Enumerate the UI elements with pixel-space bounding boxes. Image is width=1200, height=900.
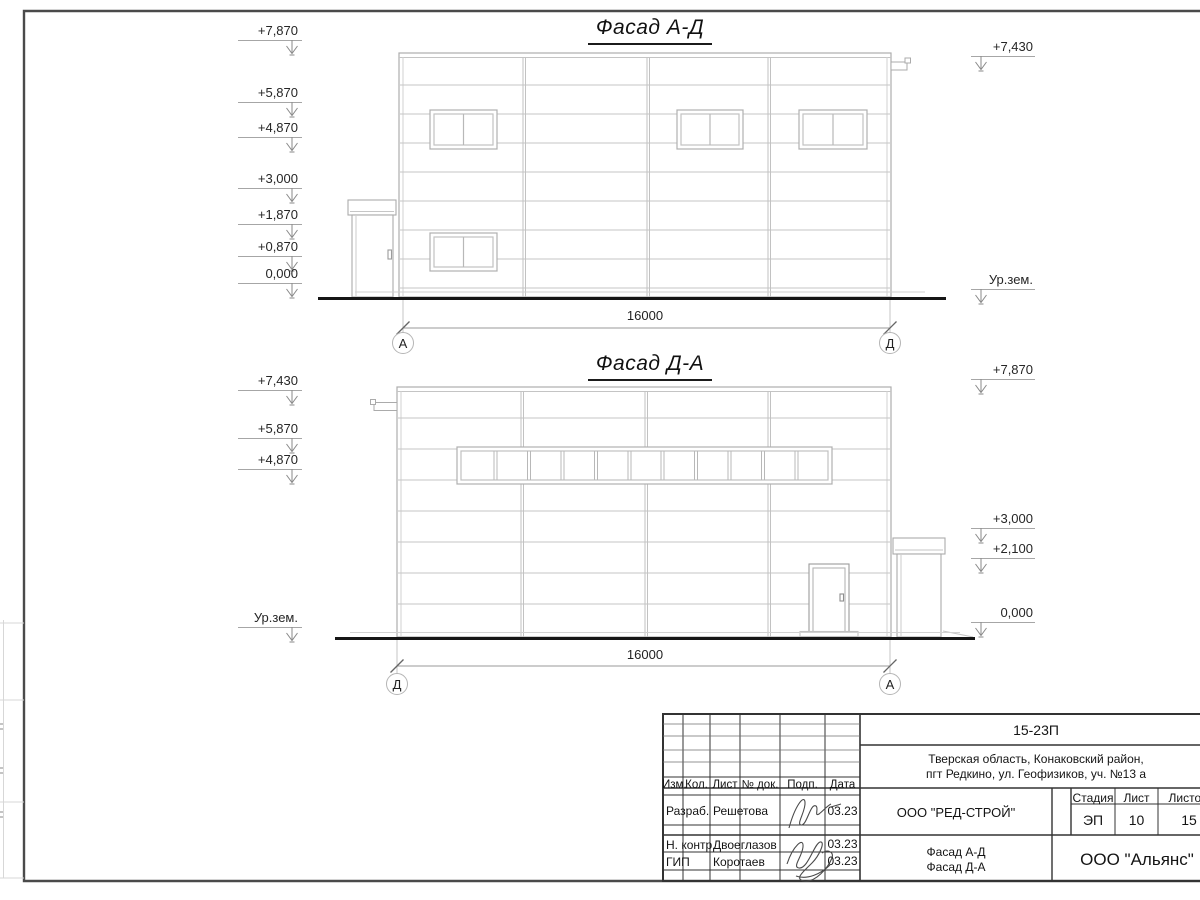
title-block-company: ООО "РЕД-СТРОЙ" xyxy=(862,805,1050,820)
elevation-symbol-icon xyxy=(285,283,299,299)
facade-top-dimension-label: 16000 xyxy=(540,308,750,323)
title-block-sheets-label: Листов xyxy=(1158,791,1200,805)
elevation-mark-b7870: +7,870 xyxy=(971,362,1035,380)
elevation-symbol-icon xyxy=(285,224,299,240)
facade-bottom-pipe xyxy=(371,400,398,411)
elevation-symbol-icon xyxy=(285,627,299,643)
facade-bottom-title-wrap: Фасад Д-А xyxy=(540,352,760,381)
elevation-mark-1870: +1,870 xyxy=(238,207,302,225)
elevation-symbol-icon xyxy=(974,289,988,305)
title-block-sheet-label: Лист xyxy=(1115,791,1158,805)
elevation-symbol-icon xyxy=(974,56,988,72)
title-block-col-kol: Кол. xyxy=(683,779,710,791)
elevation-mark-b0000: 0,000 xyxy=(971,605,1035,623)
elevation-symbol-icon xyxy=(974,622,988,638)
facade-top-title: Фасад А-Д xyxy=(588,16,712,45)
facade-bottom-building xyxy=(335,387,975,639)
elevation-symbol-icon xyxy=(285,469,299,485)
facade-top-pipe xyxy=(891,58,911,70)
facade-bottom-dimension-label: 16000 xyxy=(540,647,750,662)
elevation-mark-3000: +3,000 xyxy=(238,171,302,189)
title-block-sheets-value: 15 xyxy=(1158,812,1200,828)
facade-top-building xyxy=(318,53,946,299)
elevation-symbol-icon xyxy=(285,390,299,406)
axis-label-top-left: А xyxy=(392,336,414,351)
elevation-symbol-icon xyxy=(285,188,299,204)
axis-label-top-right: Д xyxy=(879,336,901,351)
elevation-symbol-icon xyxy=(285,137,299,153)
facade-top-porch xyxy=(348,200,396,297)
title-block-row-role: Н. контр. xyxy=(666,838,716,852)
elevation-symbol-icon xyxy=(285,40,299,56)
title-block-col-doc: № док. xyxy=(739,779,781,791)
title-block-row-date: 03.23 xyxy=(826,837,859,851)
title-block-col-list: Лист xyxy=(710,779,740,791)
title-block-row-date: 03.23 xyxy=(826,804,859,818)
elevation-mark-b3000: +3,000 xyxy=(971,511,1035,529)
elevation-mark-4870: +4,870 xyxy=(238,120,302,138)
elevation-symbol-icon xyxy=(974,558,988,574)
facade-bottom-door xyxy=(800,564,858,637)
title-block-row-name: Коротаев xyxy=(713,855,765,869)
title-block-row-role: ГИП xyxy=(666,855,690,869)
title-block-col-podp: Подп. xyxy=(780,779,825,791)
title-block-address-line1: Тверская область, Конаковский район, xyxy=(865,752,1200,766)
title-block-drawing-name-line1: Фасад А-Д xyxy=(862,845,1050,859)
facade-bottom-ribbon-window xyxy=(457,447,832,484)
title-block-project-code: 15-23П xyxy=(880,722,1192,738)
title-block-stage-label: Стадия xyxy=(1071,791,1115,805)
left-margin-artifacts xyxy=(0,620,24,878)
title-block-sheet-value: 10 xyxy=(1115,812,1158,828)
title-block-drawing-name-line2: Фасад Д-А xyxy=(862,860,1050,874)
elevation-mark-5870: +5,870 xyxy=(238,85,302,103)
elevation-symbol-icon xyxy=(285,102,299,118)
title-block-address-line2: пгт Редкино, ул. Геофизиков, уч. №13 а xyxy=(865,767,1200,781)
elevation-mark-ground-top: Ур.зем. xyxy=(971,272,1035,290)
axis-label-bottom-left: Д xyxy=(386,677,408,692)
title-block-contractor: ООО "Альянс" xyxy=(1052,850,1200,870)
title-block-col-data: Дата xyxy=(825,779,860,791)
title-block-row-role: Разраб. xyxy=(666,804,709,818)
elevation-mark-7430: +7,430 xyxy=(971,39,1035,57)
facade-bottom-vestibule xyxy=(893,538,973,637)
title-block-row-name: Двоеглазов xyxy=(713,838,777,852)
elevation-mark-b4870: +4,870 xyxy=(238,452,302,470)
elevation-mark-ground-bottom-left: Ур.зем. xyxy=(238,610,302,628)
elevation-mark-0870: +0,870 xyxy=(238,239,302,257)
elevation-mark-b2100: +2,100 xyxy=(971,541,1035,559)
elevation-mark-7870: +7,870 xyxy=(238,23,302,41)
facade-bottom-title: Фасад Д-А xyxy=(588,352,712,381)
drawing-sheet: Фасад А-Д Фасад Д-А +7,870 +5,870 +4,870… xyxy=(0,0,1200,900)
title-block-col-izm: Изм. xyxy=(662,779,684,791)
title-block-row-name: Решетова xyxy=(713,804,768,818)
elevation-symbol-icon xyxy=(974,379,988,395)
facade-top-title-wrap: Фасад А-Д xyxy=(540,16,760,45)
elevation-mark-b7430: +7,430 xyxy=(238,373,302,391)
title-block-row-date: 03.23 xyxy=(826,854,859,868)
elevation-mark-0000: 0,000 xyxy=(238,266,302,284)
title-block-stage-value: ЭП xyxy=(1071,812,1115,828)
axis-label-bottom-right: А xyxy=(879,677,901,692)
elevation-mark-b5870: +5,870 xyxy=(238,421,302,439)
